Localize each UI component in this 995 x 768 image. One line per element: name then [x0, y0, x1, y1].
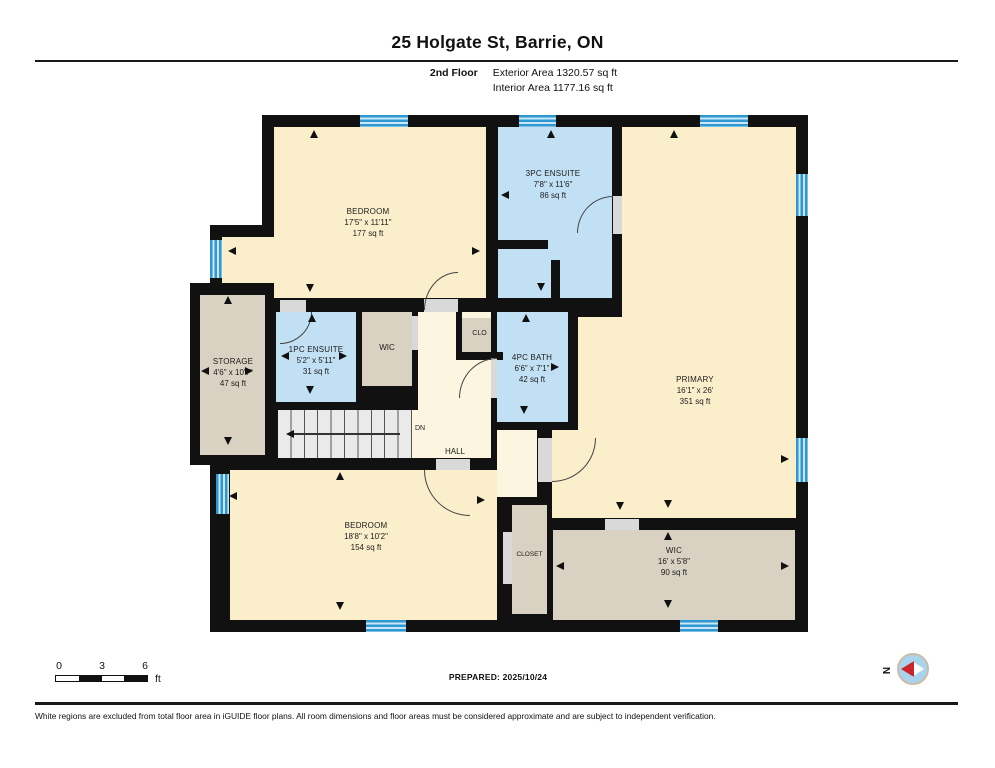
room-label-hall: HALL: [430, 446, 480, 457]
dimension-arrow-icon: [224, 296, 232, 304]
window-icon: [360, 115, 408, 127]
dimension-arrow-icon: [781, 455, 789, 463]
dimension-arrow-icon: [477, 496, 485, 504]
dimension-arrow-icon: [664, 500, 672, 508]
dimension-arrow-icon: [336, 472, 344, 480]
room-label-1pc-ensuite: 1PC ENSUITE 5'2" x 5'11" 31 sq ft: [266, 344, 366, 377]
dimension-arrow-icon: [281, 352, 289, 360]
door-opening: [280, 300, 306, 312]
dimension-arrow-icon: [306, 386, 314, 394]
stairs-direction-line: [292, 433, 400, 435]
footer-divider: [35, 702, 958, 705]
scale-numbers: 0 3 6: [55, 660, 148, 673]
scale-strip: [55, 675, 148, 682]
room-label-wic-bottom: WIC 16' x 5'8" 90 sq ft: [606, 545, 742, 578]
window-icon: [700, 115, 748, 127]
wall-segment: [491, 422, 574, 430]
dimension-arrow-icon: [245, 367, 253, 375]
door-opening: [538, 438, 552, 482]
door-opening: [605, 519, 639, 530]
room-label-bedroom-bottom: BEDROOM 18'8" x 10'2" 154 sq ft: [298, 520, 434, 553]
scale-unit: ft: [155, 673, 161, 685]
north-indicator: N: [884, 652, 944, 694]
dimension-arrow-icon: [537, 283, 545, 291]
dimension-arrow-icon: [201, 367, 209, 375]
header-divider: [35, 60, 958, 62]
door-opening: [613, 196, 622, 234]
window-icon: [216, 474, 229, 514]
floorplan-page: 25 Holgate St, Barrie, ON 2nd Floor Exte…: [0, 0, 995, 768]
room-label-primary: PRIMARY 16'1" x 26' 351 sq ft: [627, 374, 763, 407]
dimension-arrow-icon: [556, 562, 564, 570]
dimension-arrow-icon: [616, 502, 624, 510]
stairs-arrow-icon: [286, 430, 294, 438]
compass-icon: [897, 653, 929, 685]
wall-segment: [498, 240, 548, 249]
dimension-arrow-icon: [308, 314, 316, 322]
dimension-arrow-icon: [551, 363, 559, 371]
room-primary: [622, 127, 796, 317]
scale-bar: 0 3 6 ft: [55, 660, 185, 682]
window-icon: [796, 438, 808, 482]
room-hall: [497, 430, 537, 497]
dimension-arrow-icon: [472, 247, 480, 255]
window-icon: [366, 620, 406, 632]
room-label-wic-top: WIC: [362, 342, 412, 353]
dimension-arrow-icon: [224, 437, 232, 445]
room-label-clo: CLO: [461, 328, 498, 339]
dimension-arrow-icon: [310, 130, 318, 138]
dimension-arrow-icon: [520, 406, 528, 414]
page-title: 25 Holgate St, Barrie, ON: [0, 32, 995, 53]
disclaimer-text: White regions are excluded from total fl…: [35, 711, 958, 721]
dimension-arrow-icon: [336, 602, 344, 610]
interior-area: Interior Area 1177.16 sq ft: [493, 82, 613, 94]
compass-needle-icon: [901, 661, 914, 677]
window-icon: [796, 174, 808, 216]
floor-label: 2nd Floor: [430, 66, 478, 96]
room-hall: [412, 410, 418, 458]
dimension-arrow-icon: [547, 130, 555, 138]
dimension-arrow-icon: [339, 352, 347, 360]
dimension-arrow-icon: [306, 284, 314, 292]
room-label-bedroom-top: BEDROOM 17'5" x 11'11" 177 sq ft: [300, 206, 436, 239]
floor-info: 2nd Floor Exterior Area 1320.57 sq ft In…: [26, 66, 995, 96]
room-bedroom-top-nook: [222, 237, 282, 283]
window-icon: [680, 620, 718, 632]
window-icon: [519, 115, 556, 127]
dimension-arrow-icon: [670, 130, 678, 138]
dimension-arrow-icon: [522, 314, 530, 322]
dimension-arrow-icon: [781, 562, 789, 570]
room-label-closet: CLOSET: [509, 549, 550, 560]
area-summary: Exterior Area 1320.57 sq ft Interior Are…: [493, 66, 617, 96]
stairs-dn-label: DN: [415, 423, 441, 434]
dimension-arrow-icon: [501, 191, 509, 199]
door-opening: [412, 316, 418, 350]
dimension-arrow-icon: [228, 247, 236, 255]
exterior-area: Exterior Area 1320.57 sq ft: [493, 67, 617, 79]
prepared-date: PREPARED: 2025/10/24: [378, 672, 618, 682]
wall-segment: [551, 260, 560, 298]
dimension-arrow-icon: [664, 532, 672, 540]
dimension-arrow-icon: [664, 600, 672, 608]
window-icon: [210, 240, 222, 278]
north-label: N: [882, 667, 893, 674]
room-label-4pc-bath: 4PC BATH 6'6" x 7'1" 42 sq ft: [482, 352, 582, 385]
dimension-arrow-icon: [229, 492, 237, 500]
door-opening: [436, 459, 470, 470]
